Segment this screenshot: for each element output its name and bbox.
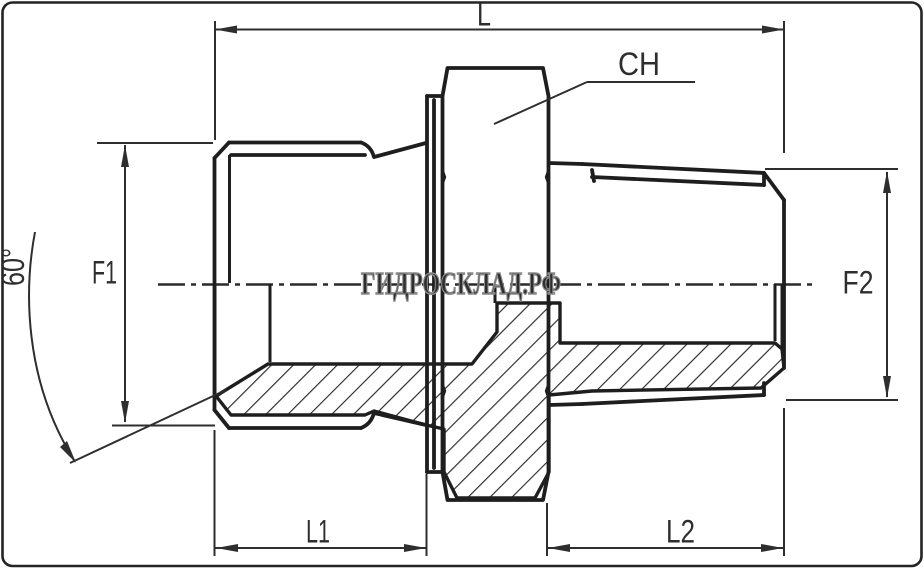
svg-text:L1: L1 (306, 514, 330, 550)
svg-text:60°: 60° (0, 248, 31, 286)
svg-text:F2: F2 (843, 265, 874, 301)
svg-text:L2: L2 (666, 514, 695, 550)
svg-text:L: L (477, 0, 491, 33)
svg-text:ГИДРОСКЛАД.РФ: ГИДРОСКЛАД.РФ (361, 265, 561, 301)
svg-text:F1: F1 (92, 255, 117, 291)
svg-text:CH: CH (618, 46, 660, 82)
